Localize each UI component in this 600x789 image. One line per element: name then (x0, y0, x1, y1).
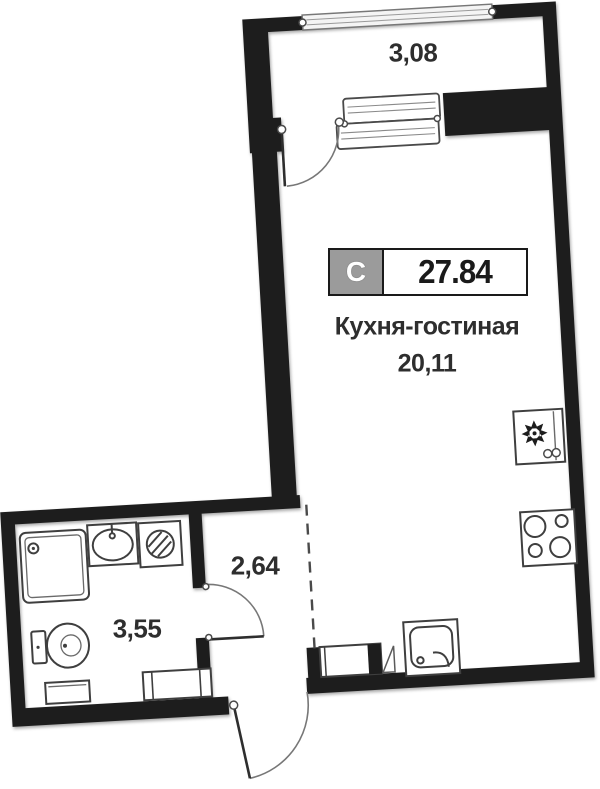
kitchen-living-label: Кухня-гостиная (335, 313, 520, 342)
apartment-type-badge: С 27.84 (328, 248, 528, 296)
cabinet (45, 680, 90, 703)
fridge-icon (513, 409, 565, 465)
floor-plan: 3,08 С 27.84 Кухня-гостиная 20,11 2,64 3… (0, 0, 600, 789)
wall-bath-right-upper (188, 501, 206, 589)
total-area-value: 27.84 (388, 250, 523, 294)
balcony-window (299, 4, 497, 30)
bathroom-door-icon (203, 580, 264, 640)
kitchen-counter (320, 643, 396, 677)
apartment-type-letter: С (330, 250, 384, 294)
stove-icon (520, 509, 577, 566)
wall-bath-top (0, 495, 300, 525)
hallway-area-label: 2,64 (231, 551, 280, 582)
floor-plan-drawing (0, 0, 600, 789)
shower-icon (19, 529, 89, 603)
zone-divider-dashed-line (306, 505, 315, 653)
wall-room-left (250, 118, 297, 497)
kitchen-sink-icon (403, 619, 460, 676)
washing-machine-icon (138, 521, 182, 567)
bathroom-area-label: 3,55 (113, 614, 162, 645)
toilet-icon (31, 622, 90, 669)
cabinet (143, 668, 212, 700)
wall-bath-bottom (12, 696, 230, 726)
kitchen-living-area-label: 20,11 (398, 350, 457, 379)
sink-icon (87, 522, 138, 566)
entrance-door-icon (229, 692, 312, 779)
wall-partition-right (443, 87, 549, 136)
balcony-window-block (335, 93, 442, 149)
balcony-area-label: 3,08 (389, 38, 438, 69)
walls (0, 1, 596, 726)
wall-right (542, 1, 595, 678)
